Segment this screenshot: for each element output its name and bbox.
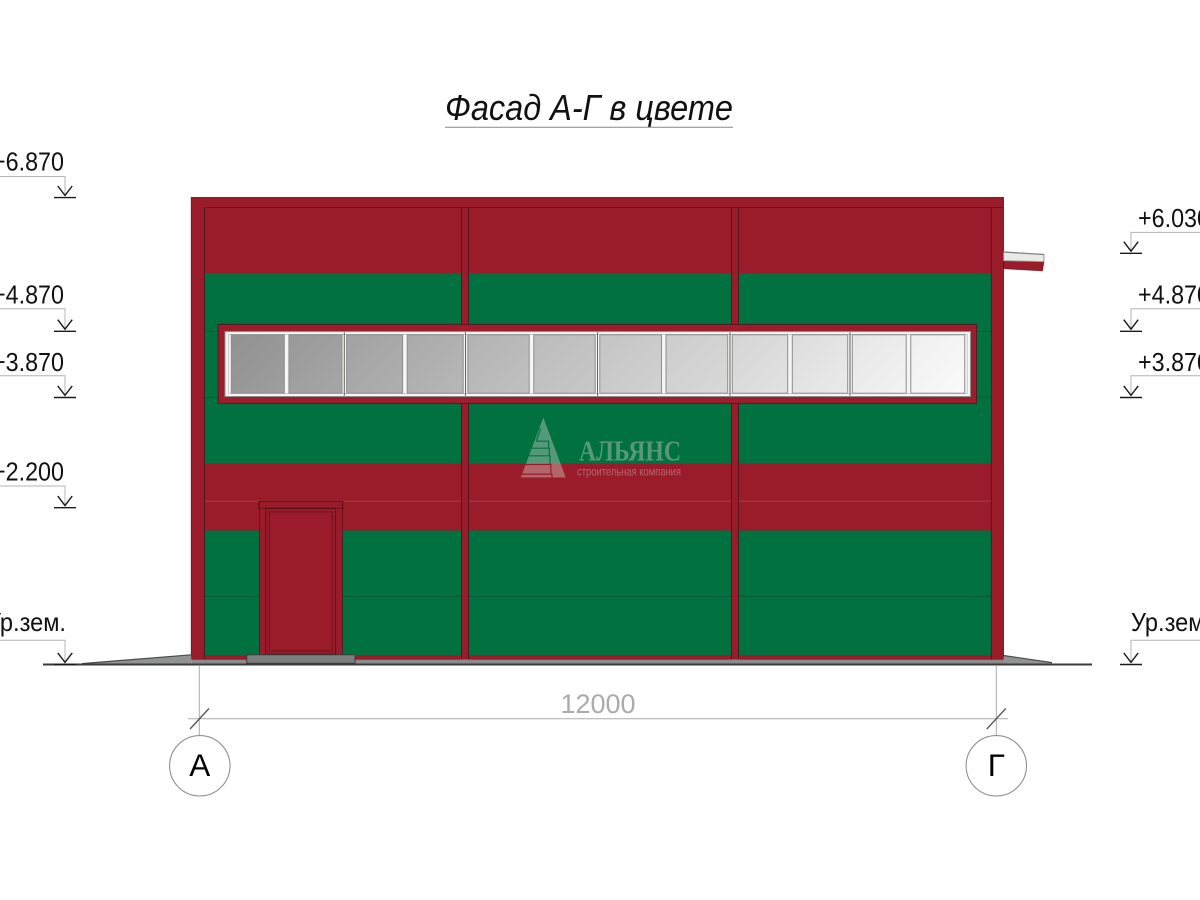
svg-text:+6.030: +6.030: [1138, 203, 1200, 233]
svg-text:Ур.зем.: Ур.зем.: [1131, 607, 1200, 637]
svg-text:Ур.зем.: Ур.зем.: [0, 607, 66, 637]
svg-text:Фасад А-Г в цвете: Фасад А-Г в цвете: [445, 87, 733, 128]
svg-text:АЛЬЯНС: АЛЬЯНС: [579, 435, 681, 467]
svg-text:Г: Г: [988, 747, 1005, 783]
svg-text:+6.870: +6.870: [0, 147, 64, 177]
svg-text:+2.200: +2.200: [0, 457, 64, 487]
svg-text:+4.870: +4.870: [1138, 280, 1200, 310]
svg-text:строительная компания: строительная компания: [577, 465, 681, 479]
svg-text:+3.870: +3.870: [1138, 347, 1200, 377]
svg-text:12000: 12000: [560, 689, 635, 719]
svg-text:+3.870: +3.870: [0, 347, 64, 377]
svg-text:+4.870: +4.870: [0, 280, 64, 310]
svg-text:А: А: [189, 747, 210, 783]
